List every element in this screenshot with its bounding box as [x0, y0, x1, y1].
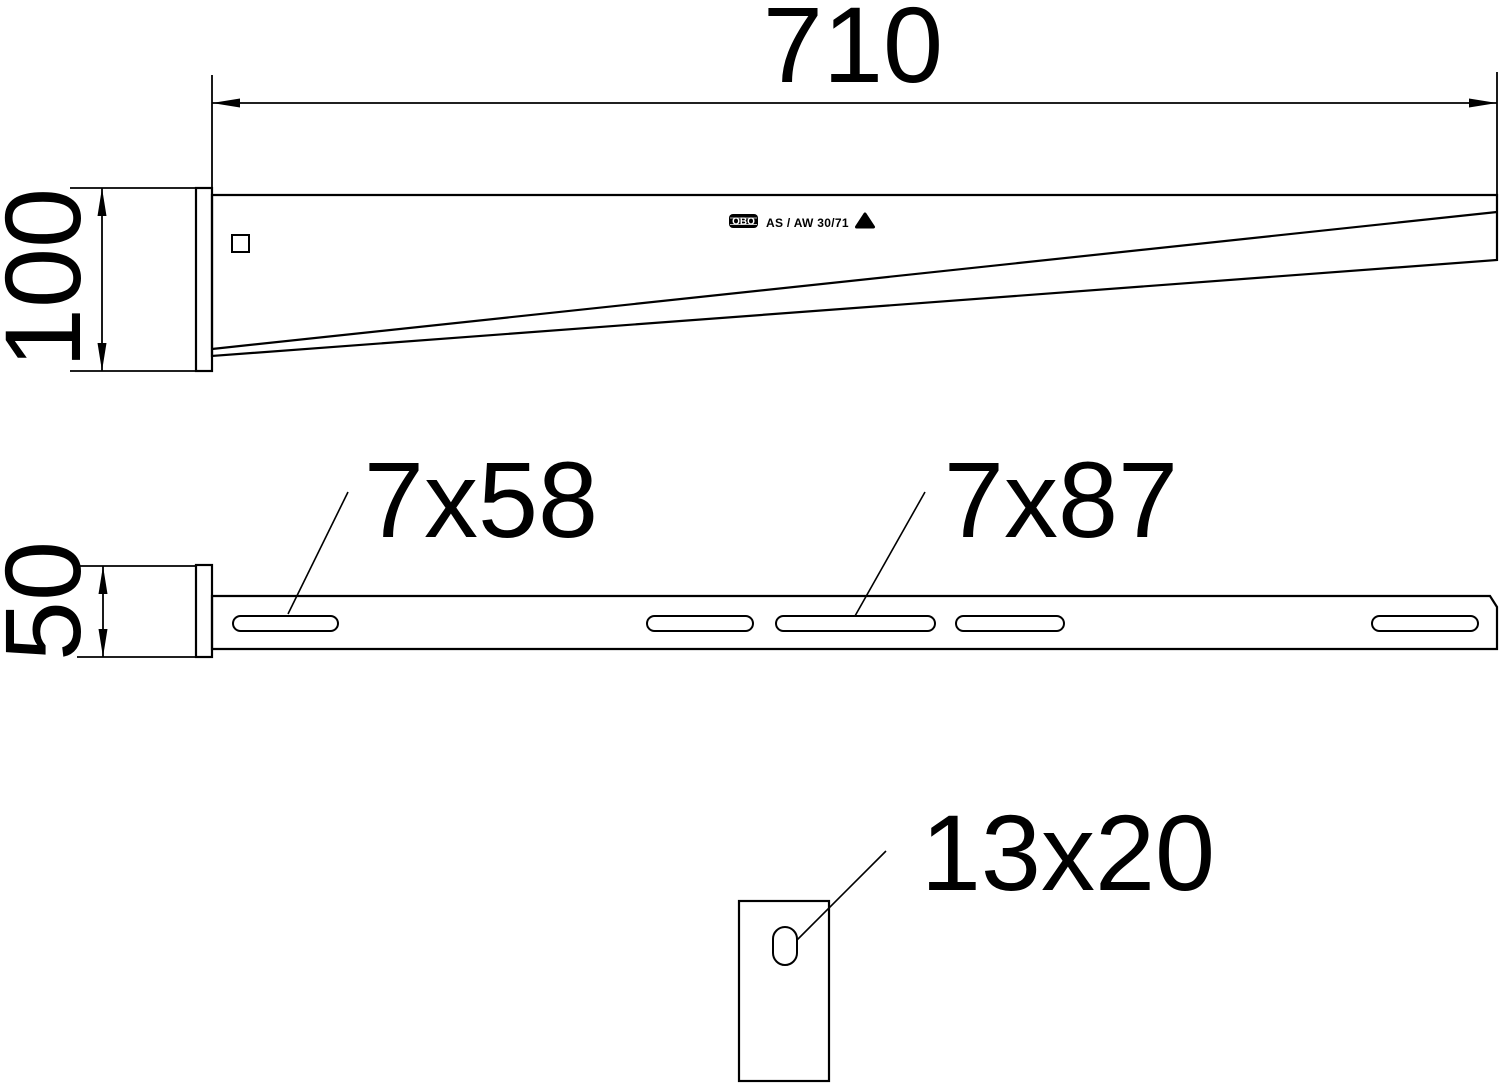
dim-length-value: 710: [763, 0, 943, 105]
stamp-code-text: AS / AW 30/71: [766, 216, 849, 230]
slot-large-value: 7x87: [944, 439, 1178, 560]
slot-small-value: 7x58: [364, 439, 598, 560]
dim-height-value: 100: [0, 188, 103, 368]
bracket-technical-drawing: OBO AS / AW 30/71 710 100: [0, 0, 1500, 1083]
drawing-background: [0, 0, 1500, 1083]
drawing-canvas: OBO AS / AW 30/71 710 100: [0, 0, 1500, 1083]
hole-dim-value: 13x20: [921, 792, 1215, 913]
dim-width-value: 50: [0, 541, 103, 661]
